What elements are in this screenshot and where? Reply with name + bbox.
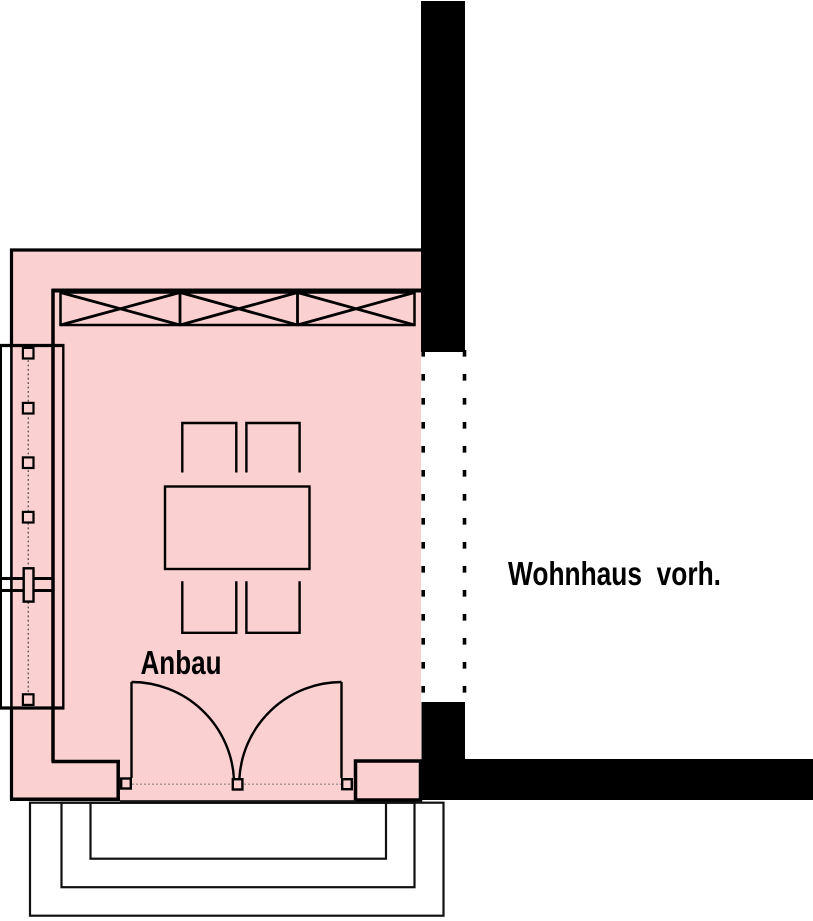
svg-text:Wohnhaus vorh.: Wohnhaus vorh.: [508, 555, 721, 592]
svg-text:Anbau: Anbau: [141, 644, 222, 681]
